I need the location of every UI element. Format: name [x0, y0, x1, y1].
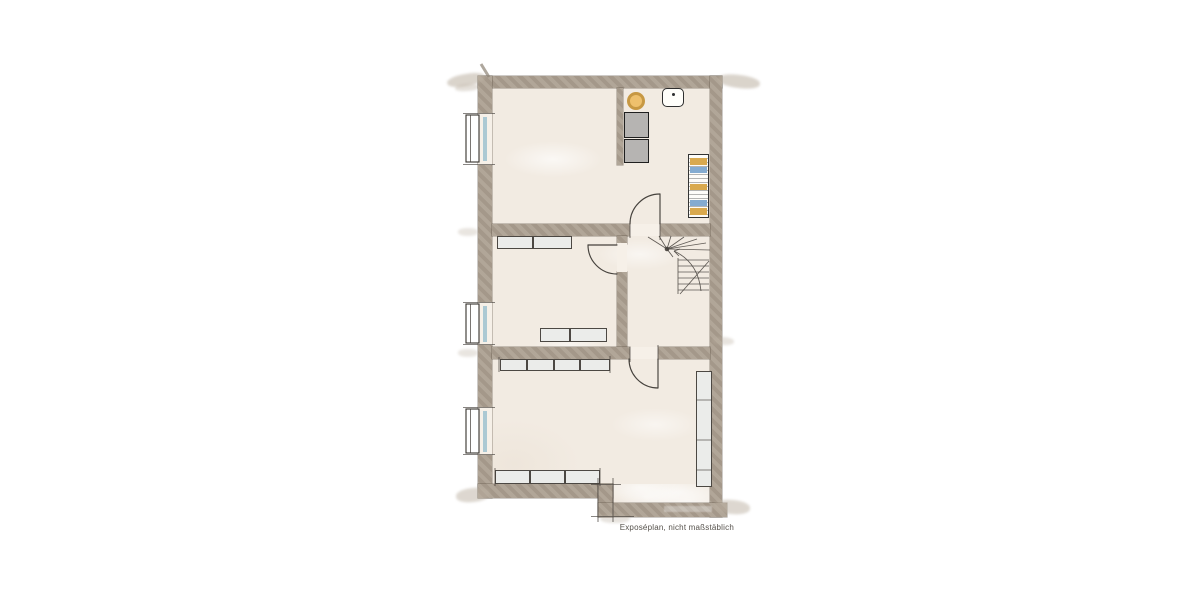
paint-smudge	[600, 514, 630, 523]
wall-top-room-divider-right	[660, 224, 710, 236]
washbasin	[662, 88, 684, 107]
door-threshold-top-room	[630, 224, 660, 236]
cabinet	[500, 359, 527, 371]
cabinet	[495, 470, 530, 484]
disclaimer-text: Exposéplan, nicht maßstäblich	[0, 523, 734, 532]
floor-extension	[613, 484, 710, 504]
door-threshold-bottom-room	[630, 347, 658, 359]
shelf-band	[690, 158, 707, 165]
paint-smudge	[458, 349, 478, 357]
cabinet	[570, 328, 607, 342]
striped-shelf	[688, 154, 709, 218]
round-fixture	[627, 92, 645, 110]
wall-top-room-divider-left	[492, 224, 630, 236]
window-glass-2	[483, 306, 487, 342]
wall-hall-divider-lower	[617, 272, 627, 347]
wall-top	[478, 76, 722, 88]
window-glass-3	[483, 411, 487, 452]
floor-main	[492, 88, 710, 484]
floor-plan-canvas: Exposéplan, nicht maßstäblich	[0, 0, 1200, 600]
cabinet	[554, 359, 580, 371]
paint-smudge	[458, 228, 478, 236]
paint-smudge	[717, 72, 760, 90]
door-threshold-middle-room	[617, 243, 627, 272]
window-glass-1	[483, 117, 487, 161]
paint-smudge	[455, 486, 490, 503]
wall-bottom-room-divider-right	[658, 347, 710, 359]
cabinet	[533, 236, 572, 249]
cabinet	[530, 470, 565, 484]
cabinet	[565, 470, 600, 484]
wall-partial-top-room	[617, 88, 623, 165]
tall-wardrobe	[696, 371, 712, 487]
cabinet	[497, 236, 533, 249]
wall-bottom-left	[478, 484, 613, 498]
appliance-1	[624, 112, 649, 138]
appliance-2	[624, 139, 649, 163]
cabinet	[540, 328, 570, 342]
watermark	[664, 506, 712, 512]
paint-smudge	[455, 83, 479, 92]
faucet-dot	[672, 93, 675, 96]
shelf-band	[690, 167, 707, 173]
cabinet	[527, 359, 554, 371]
wall-bottom-room-divider-left	[492, 347, 630, 359]
cabinet	[580, 359, 610, 371]
shelf-band	[690, 208, 707, 215]
shelf-band	[690, 200, 707, 206]
shelf-band	[690, 184, 707, 190]
